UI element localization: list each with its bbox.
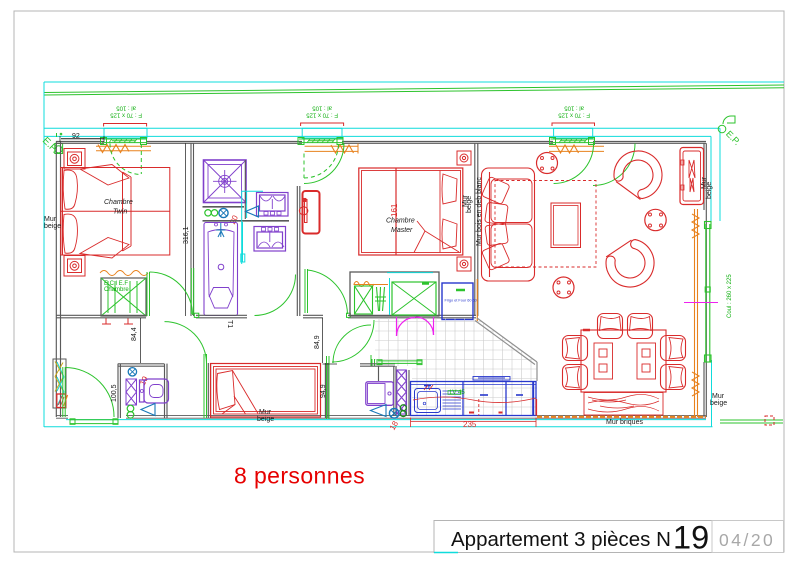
svg-text:al : 105: al : 105 [116, 105, 136, 111]
svg-text:LV 45: LV 45 [450, 390, 466, 396]
svg-text:Chambre: Chambre [104, 199, 133, 206]
svg-text:Chambre: Chambre [386, 218, 415, 225]
svg-text:F : 70 x 125: F : 70 x 125 [110, 112, 142, 118]
svg-text:al : 105: al : 105 [564, 105, 584, 111]
svg-text:316,1: 316,1 [183, 226, 190, 244]
svg-text:Frigo et Four 60 60: Frigo et Four 60 60 [445, 299, 477, 303]
svg-text:beige: beige [44, 223, 61, 230]
svg-text:F : 70 x 125: F : 70 x 125 [306, 112, 338, 118]
svg-text:Mur: Mur [259, 409, 272, 416]
svg-text:al : 105: al : 105 [312, 105, 332, 111]
svg-text:beige: beige [466, 196, 473, 213]
svg-text:beige: beige [710, 400, 727, 407]
svg-text:Mur: Mur [44, 216, 57, 223]
svg-text:Chambre: Chambre [104, 287, 129, 293]
svg-text:beige: beige [257, 416, 274, 423]
svg-text:161: 161 [390, 203, 399, 217]
svg-text:beige: beige [706, 182, 713, 199]
svg-text:94,9: 94,9 [320, 384, 327, 398]
svg-text:84,4: 84,4 [131, 327, 138, 341]
svg-text:Coul : 260 x 225: Coul : 260 x 225 [727, 274, 733, 318]
svg-text:Mur: Mur [712, 393, 725, 400]
svg-text:Twin: Twin [113, 209, 127, 216]
svg-text:84,9: 84,9 [314, 335, 321, 349]
svg-text:19: 19 [673, 520, 709, 556]
svg-text:100,5: 100,5 [111, 384, 118, 402]
svg-text:Mur bois en deb blanc: Mur bois en deb blanc [476, 177, 483, 246]
svg-text:Appartement 3 pièces N: Appartement 3 pièces N [451, 528, 671, 551]
svg-text:Master: Master [391, 227, 413, 234]
svg-text:8 personnes: 8 personnes [234, 463, 365, 489]
svg-text:T1: T1 [226, 320, 233, 328]
svg-text:Mur briques: Mur briques [606, 419, 643, 426]
svg-text:04/20: 04/20 [719, 530, 775, 550]
svg-text:F : 70 x 125: F : 70 x 125 [558, 112, 590, 118]
